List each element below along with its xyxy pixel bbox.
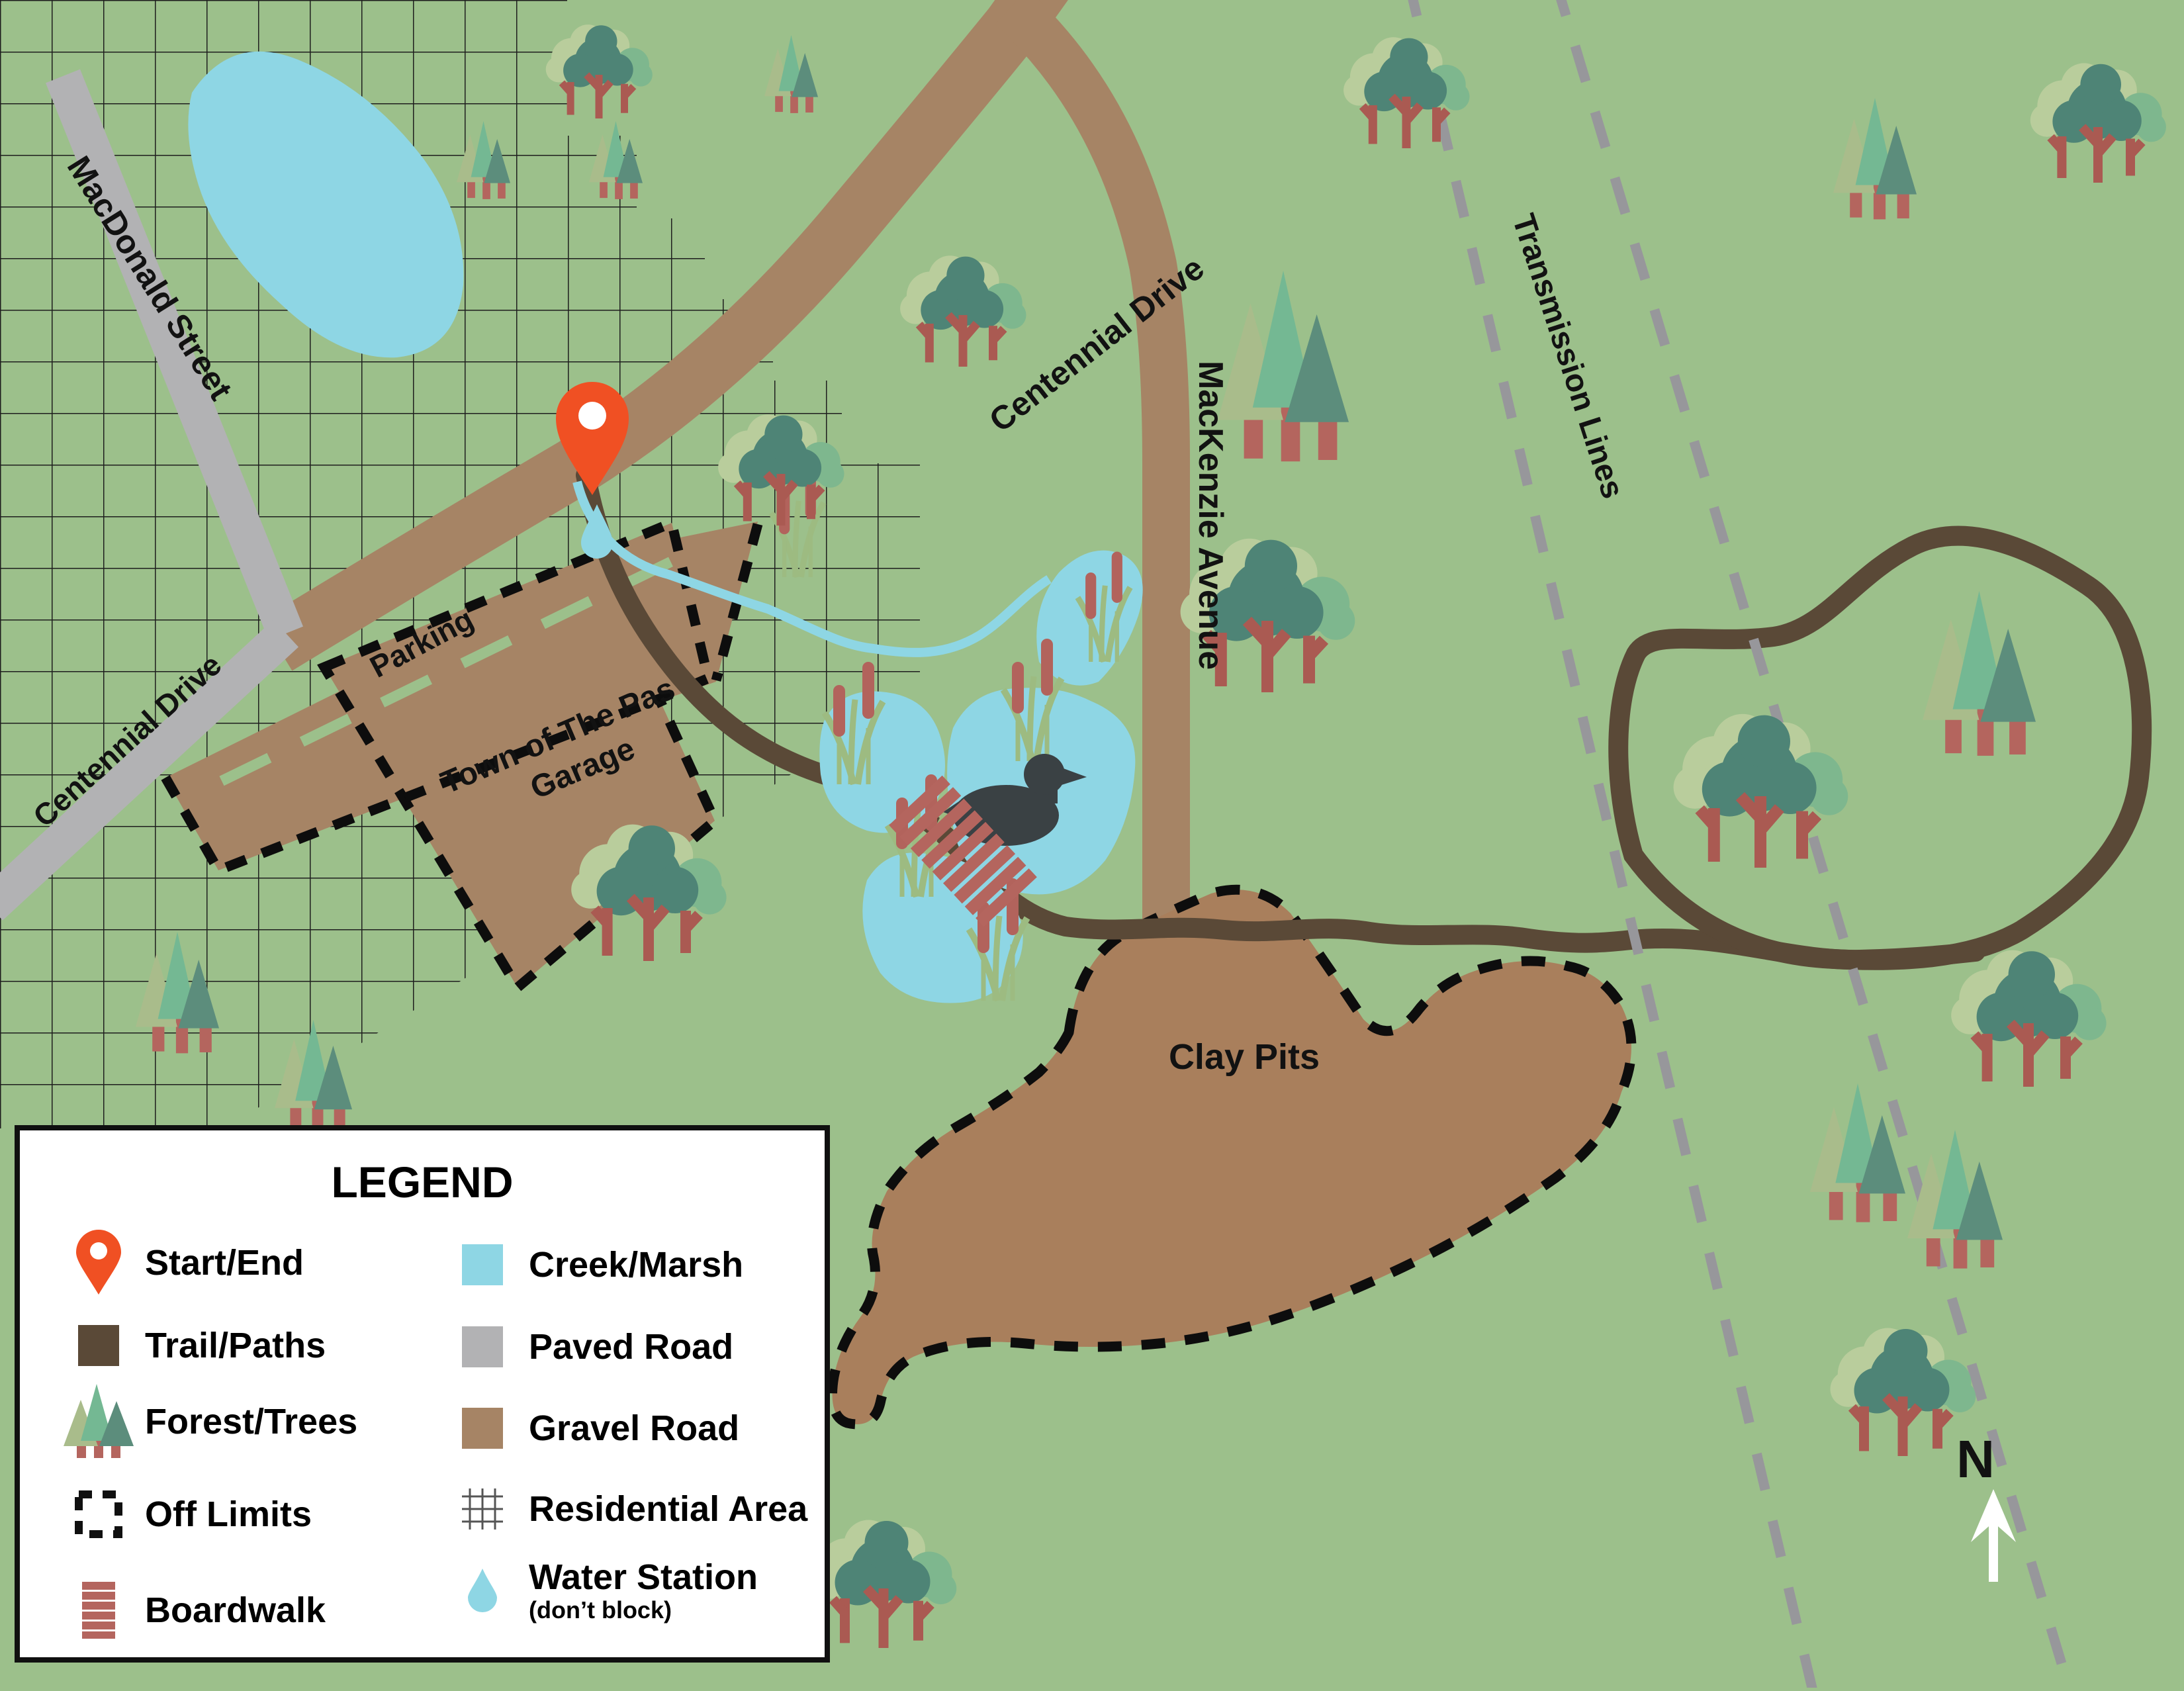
residential-area-icon bbox=[436, 1487, 529, 1531]
start-end-pin-icon bbox=[52, 1230, 145, 1296]
legend-item-forest-trees: Forest/Trees bbox=[52, 1383, 357, 1460]
legend-item-start-end: Start/End bbox=[52, 1224, 304, 1301]
legend-item-water-station: Water Station (don’t block) bbox=[436, 1551, 758, 1628]
legend-title: LEGEND bbox=[20, 1157, 825, 1207]
gravel-road-swatch-icon bbox=[436, 1408, 529, 1449]
trail-map-page: N MacDonald Street Centennial Drive Cent… bbox=[0, 0, 2184, 1688]
water-station-icon bbox=[436, 1567, 529, 1612]
creek-marsh-swatch-icon bbox=[436, 1244, 529, 1285]
paved-road-swatch-icon bbox=[436, 1326, 529, 1367]
legend-item-paved-road: Paved Road bbox=[436, 1308, 733, 1385]
legend-panel: LEGEND Start/End Trail/Paths Forest/Tree… bbox=[15, 1125, 830, 1663]
forest-trees-icon bbox=[52, 1383, 145, 1461]
off-limits-icon bbox=[52, 1490, 145, 1539]
clay-pits-label: Clay Pits bbox=[1169, 1037, 1320, 1077]
legend-item-boardwalk: Boardwalk bbox=[52, 1572, 326, 1649]
legend-item-off-limits: Off Limits bbox=[52, 1476, 312, 1553]
legend-item-creek-marsh: Creek/Marsh bbox=[436, 1226, 743, 1303]
legend-item-trail-paths: Trail/Paths bbox=[52, 1307, 326, 1384]
water-station-note: (don’t block) bbox=[529, 1598, 758, 1623]
boardwalk-icon bbox=[52, 1582, 145, 1639]
legend-item-gravel-road: Gravel Road bbox=[436, 1390, 739, 1467]
mackenzie-avenue-label: MacKenzie Avenue bbox=[1191, 361, 1230, 670]
legend-item-residential-area: Residential Area bbox=[436, 1471, 807, 1547]
trail-swatch-icon bbox=[52, 1325, 145, 1366]
north-label: N bbox=[1956, 1430, 1995, 1488]
